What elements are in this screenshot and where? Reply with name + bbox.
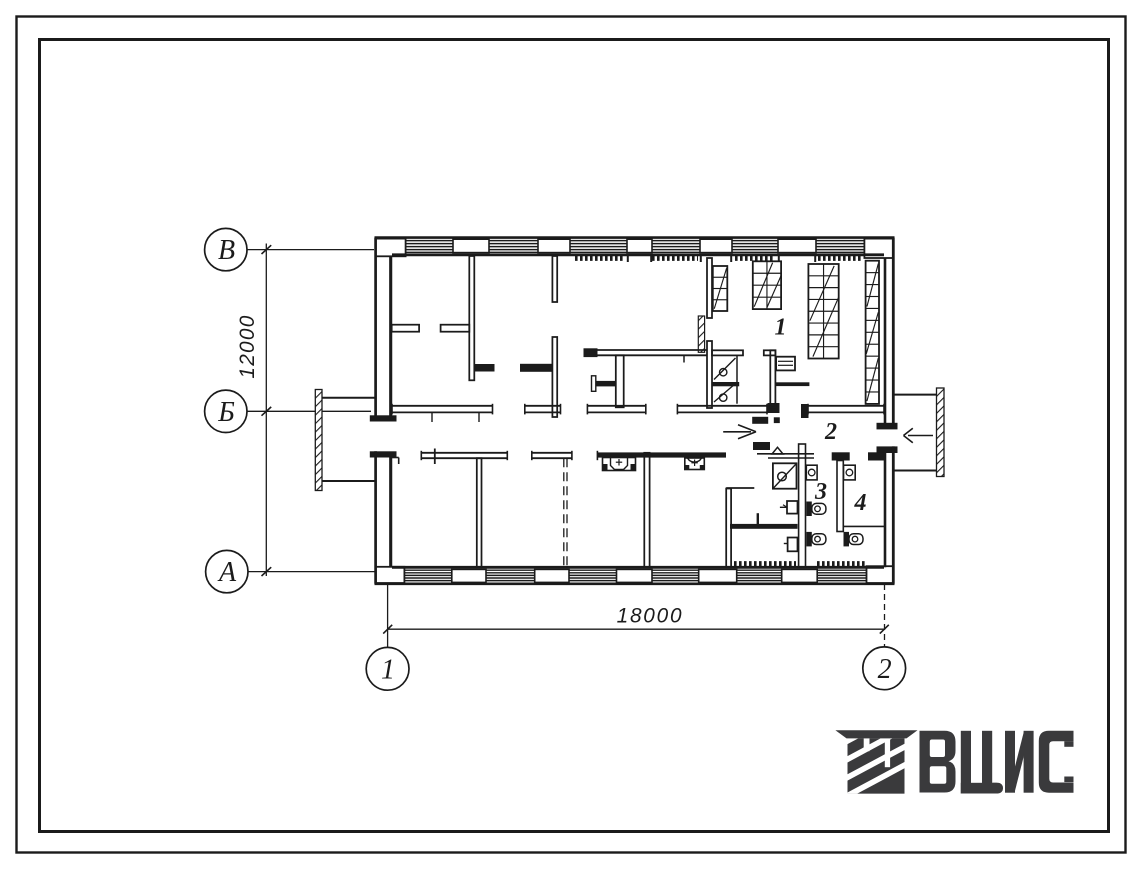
- svg-text:В: В: [218, 235, 235, 266]
- svg-text:1: 1: [775, 315, 787, 341]
- svg-text:3: 3: [814, 479, 827, 505]
- svg-text:4: 4: [854, 490, 867, 516]
- svg-text:2: 2: [878, 654, 892, 685]
- svg-text:А: А: [217, 557, 237, 588]
- svg-text:2: 2: [824, 419, 837, 445]
- svg-text:12000: 12000: [236, 314, 259, 378]
- svg-text:Б: Б: [217, 397, 235, 428]
- svg-text:1: 1: [381, 655, 395, 686]
- svg-text:18000: 18000: [617, 605, 684, 628]
